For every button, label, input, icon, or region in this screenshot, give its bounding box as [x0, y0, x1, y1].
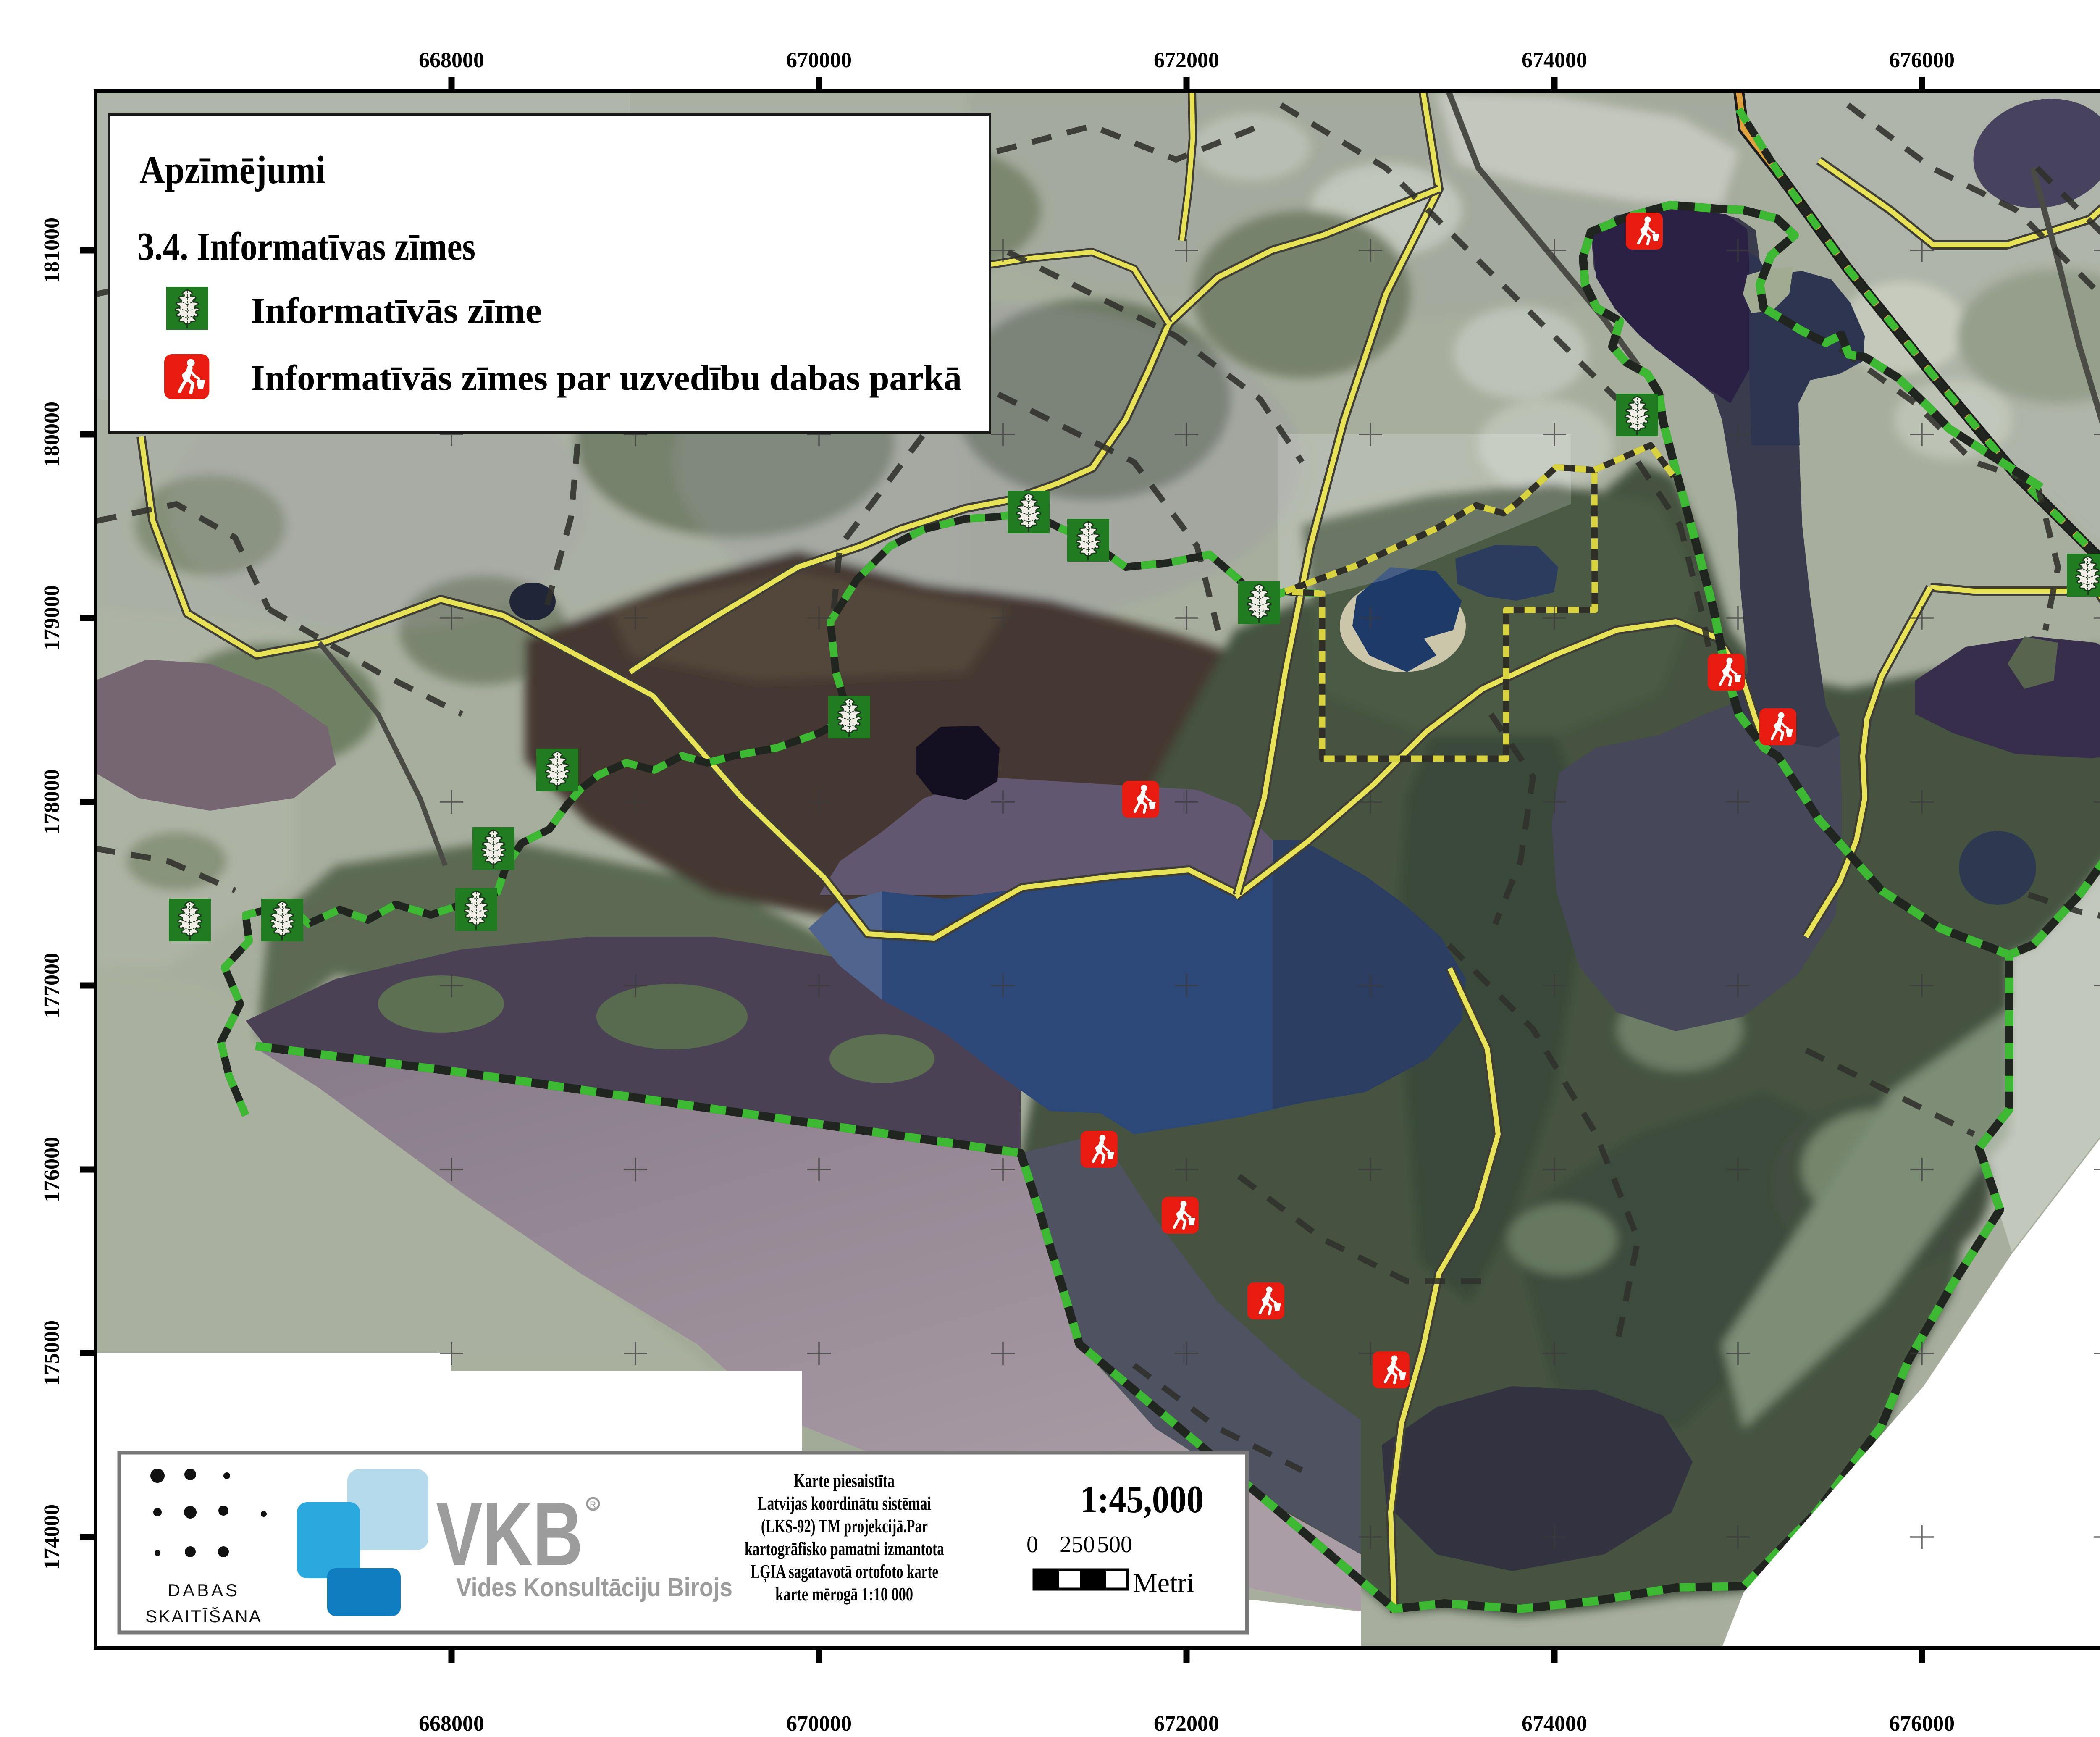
svg-text:175000: 175000 — [40, 1320, 64, 1386]
svg-text:179000: 179000 — [40, 585, 64, 651]
svg-text:karte mērogā 1:10 000: karte mērogā 1:10 000 — [775, 1584, 913, 1605]
svg-text:181000: 181000 — [40, 218, 64, 283]
svg-text:Apzīmējumi: Apzīmējumi — [139, 148, 325, 192]
svg-text:kartogrāfisko pamatni izmantot: kartogrāfisko pamatni izmantota — [745, 1538, 944, 1559]
svg-text:674000: 674000 — [1522, 1712, 1587, 1736]
svg-text:672000: 672000 — [1154, 1712, 1219, 1736]
svg-text:Informatīvās zīmes par uzvedīb: Informatīvās zīmes par uzvedību dabas pa… — [251, 357, 962, 398]
svg-text:(LKS-92) TM projekcijā.Par: (LKS-92) TM projekcijā.Par — [761, 1516, 928, 1537]
svg-text:Informatīvās zīme: Informatīvās zīme — [251, 290, 542, 331]
svg-text:180000: 180000 — [40, 402, 64, 467]
svg-text:174000: 174000 — [40, 1504, 64, 1570]
svg-text:R: R — [590, 1500, 596, 1510]
svg-text:668000: 668000 — [419, 48, 484, 72]
svg-text:DABAS: DABAS — [168, 1580, 240, 1600]
svg-text:0: 0 — [1026, 1532, 1038, 1558]
svg-text:Metri: Metri — [1133, 1568, 1194, 1598]
svg-text:500: 500 — [1097, 1532, 1132, 1558]
svg-text:670000: 670000 — [786, 48, 852, 72]
svg-text:672000: 672000 — [1154, 48, 1219, 72]
svg-text:178000: 178000 — [40, 769, 64, 835]
svg-text:676000: 676000 — [1889, 1712, 1955, 1736]
svg-text:668000: 668000 — [419, 1712, 484, 1736]
svg-text:1:45,000: 1:45,000 — [1080, 1478, 1204, 1521]
svg-text:250: 250 — [1060, 1532, 1095, 1558]
svg-text:LĢIA sagatavotā ortofoto karte: LĢIA sagatavotā ortofoto karte — [751, 1561, 938, 1582]
svg-text:SKAITĪŠANA: SKAITĪŠANA — [145, 1606, 262, 1626]
svg-text:Latvijas koordinātu sistēmai: Latvijas koordinātu sistēmai — [758, 1493, 931, 1514]
svg-text:177000: 177000 — [40, 953, 64, 1018]
svg-text:Karte piesaistīta: Karte piesaistīta — [794, 1470, 895, 1491]
svg-text:3.4. Informatīvas zīmes: 3.4. Informatīvas zīmes — [137, 225, 475, 268]
svg-text:Vides Konsultāciju Birojs: Vides Konsultāciju Birojs — [456, 1573, 732, 1602]
svg-text:676000: 676000 — [1889, 48, 1955, 72]
svg-text:VKB: VKB — [436, 1483, 583, 1585]
svg-text:176000: 176000 — [40, 1137, 64, 1202]
svg-text:670000: 670000 — [786, 1712, 852, 1736]
svg-text:674000: 674000 — [1522, 48, 1587, 72]
